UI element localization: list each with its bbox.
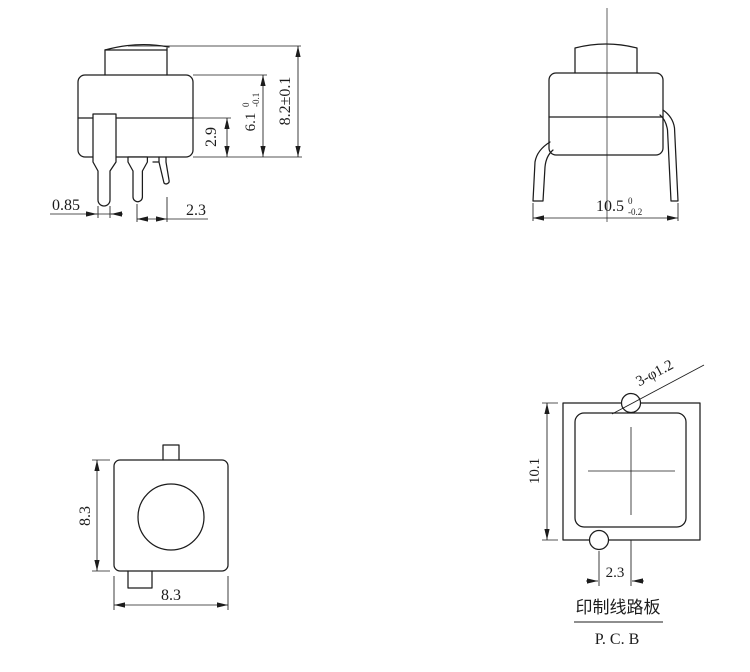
pcb-view: 3-φ1.2 10.1 2.3 印制线路板 P. C. B [527,357,704,648]
dim-value: 6.1 [243,113,259,132]
side-pin-left [93,114,116,206]
pcb-caption-english: P. C. B [595,631,639,648]
dim-text-pad-height: 10.1 [527,458,543,484]
technical-drawing: 8.2±0.1 6.1 0 -0.1 2.9 0.85 2.3 [0,0,750,672]
dim-tol-lower: -0.2 [628,207,642,217]
dim-tol-upper: 0 [241,102,251,107]
hole-callout-text: 3-φ1.2 [633,357,676,390]
pcb-inner-outline [575,413,686,527]
bottom-top-tab [163,445,179,460]
side-pin-right [128,157,147,202]
side-cap-dome-arc [105,45,169,50]
bottom-plunger-circle [138,484,204,550]
pcb-crosshair [588,427,675,515]
dim-text-body-width: 8.3 [161,587,181,604]
dim-text-body-height: 6.1 0 -0.1 [241,93,261,132]
dim-text-overall-height: 8.2±0.1 [277,77,294,126]
dim-lead-span: 10.5 0 -0.2 [533,196,678,221]
side-bent-leg [153,157,169,184]
dim-value: 10.5 [596,198,624,215]
dim-text-pin-width: 0.85 [52,197,80,214]
ext-line [98,206,110,218]
side-cap-sides [105,48,167,75]
dim-text-hole-offset: 2.3 [606,565,625,581]
pcb-outer-square [563,403,700,540]
dim-tol-upper: 0 [628,196,633,206]
dim-body-width: 8.3 [114,576,228,610]
dim-pin-spacing: 2.3 [137,197,208,222]
bottom-body [114,460,228,571]
ext-line [542,403,558,540]
side-view: 8.2±0.1 6.1 0 -0.1 2.9 0.85 2.3 [50,45,302,222]
front-body [549,73,663,155]
drawing-sheet: 8.2±0.1 6.1 0 -0.1 2.9 0.85 2.3 [0,0,750,672]
dim-pin-width: 0.85 [50,197,123,218]
front-view: 10.5 0 -0.2 [533,8,678,222]
hole-callout: 3-φ1.2 [633,357,676,390]
dim-pad-height: 10.1 [527,403,558,540]
pcb-hole-top [622,394,641,413]
dim-tol-lower: -0.1 [251,93,261,107]
pcb-caption-chinese: 印制线路板 [576,598,661,617]
ext-line [92,460,110,571]
dim-body-height: 8.3 [77,460,110,571]
dim-text-body-height: 8.3 [77,506,94,526]
dim-text-lower-body: 2.9 [203,127,220,147]
bottom-lower-tab [128,571,152,588]
pcb-hole-bottom [590,531,609,550]
dim-text-pin-spacing: 2.3 [186,202,206,219]
front-cap [575,44,637,73]
bottom-view: 8.3 8.3 [77,445,228,610]
ext-line [137,197,167,222]
